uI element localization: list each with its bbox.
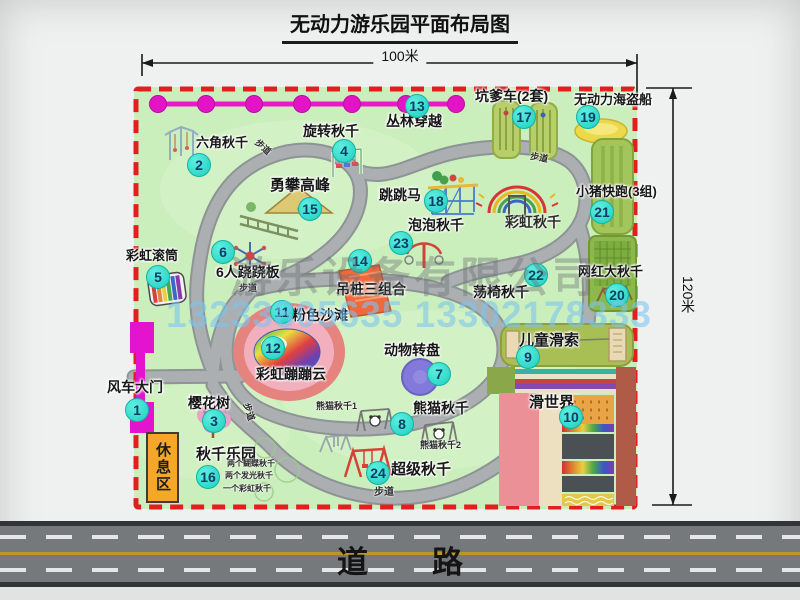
attraction-badge: 13 [405, 94, 429, 118]
attraction-label: 熊猫秋千 [413, 401, 469, 415]
attraction-label: 跳跳马 [379, 188, 421, 202]
map-note: 熊猫秋千1 [316, 402, 357, 411]
attraction-badge: 3 [202, 409, 226, 433]
attraction-badge: 18 [424, 189, 448, 213]
attraction-badge: 4 [332, 139, 356, 163]
road: 道路 [0, 521, 800, 587]
attraction-badge: 17 [512, 105, 536, 129]
attraction-label: 超级秋千 [391, 462, 451, 477]
attraction-badge: 15 [298, 197, 322, 221]
attraction-badge: 21 [590, 200, 614, 224]
attraction-badge: 6 [211, 240, 235, 264]
page-title: 无动力游乐园平面布局图 [282, 8, 518, 44]
attraction-badge: 10 [559, 405, 583, 429]
attraction-badge: 1 [125, 398, 149, 422]
map-note: 两个发光秋千 [225, 472, 273, 480]
attraction-label: 6人跷跷板 [216, 265, 280, 279]
attraction-label: 小猪快跑(3组) [576, 185, 657, 198]
map-note: 步道 [253, 138, 272, 157]
map-note: 步道 [241, 402, 255, 422]
attraction-badge: 24 [366, 461, 390, 485]
map-note: 一个彩虹秋千 [223, 485, 271, 493]
map-note: 彩虹秋千 [505, 215, 561, 229]
attraction-label: 无动力海盗船 [574, 93, 652, 106]
attraction-badge: 11 [270, 300, 294, 324]
map-note: 熊猫秋千2 [420, 441, 461, 450]
attraction-label: 吊桩三组合 [336, 282, 406, 296]
attraction-label: 风车大门 [107, 380, 163, 394]
attraction-badge: 9 [516, 345, 540, 369]
attraction-badge: 16 [196, 465, 220, 489]
attraction-label: 彩虹滚筒 [126, 249, 178, 262]
map-note: 步道 [374, 488, 394, 498]
dimension-top-label: 100米 [373, 46, 426, 66]
attraction-badge: 7 [427, 362, 451, 386]
attraction-label: 旋转秋千 [303, 124, 359, 138]
attraction-badge: 12 [261, 336, 285, 360]
attraction-label: 樱花树 [188, 396, 230, 410]
map-note: 两个蝴蝶秋千 [227, 460, 275, 468]
attraction-badge: 5 [146, 265, 170, 289]
attraction-label: 六角秋千 [196, 136, 248, 149]
attraction-badge: 14 [348, 249, 372, 273]
attraction-badge: 20 [605, 283, 629, 307]
attraction-label: 荡椅秋千 [473, 285, 529, 299]
attraction-badge: 8 [390, 412, 414, 436]
attraction-label: 网红大秋千 [578, 265, 643, 278]
attraction-label: 动物转盘 [384, 343, 440, 357]
rest-area: 休息区 [146, 432, 179, 503]
attraction-label: 粉色沙滩 [292, 308, 348, 322]
attraction-label: 彩虹蹦蹦云 [256, 367, 326, 381]
attraction-label: 勇攀高峰 [270, 178, 330, 193]
attraction-badge: 23 [389, 231, 413, 255]
attraction-badge: 22 [524, 263, 548, 287]
dimension-right-label: 120米 [678, 276, 698, 313]
curb-strip [0, 587, 800, 600]
screenshot-stage: 无动力游乐园平面布局图 100米 120米 [0, 0, 800, 600]
attraction-badge: 19 [576, 105, 600, 129]
road-label: 道路 [64, 537, 800, 582]
map-note: 步道 [529, 152, 548, 164]
attraction-label: 坑爹车(2套) [475, 89, 548, 103]
map-note: 步道 [239, 284, 257, 293]
attraction-badge: 2 [187, 153, 211, 177]
attraction-label: 泡泡秋千 [408, 218, 464, 232]
